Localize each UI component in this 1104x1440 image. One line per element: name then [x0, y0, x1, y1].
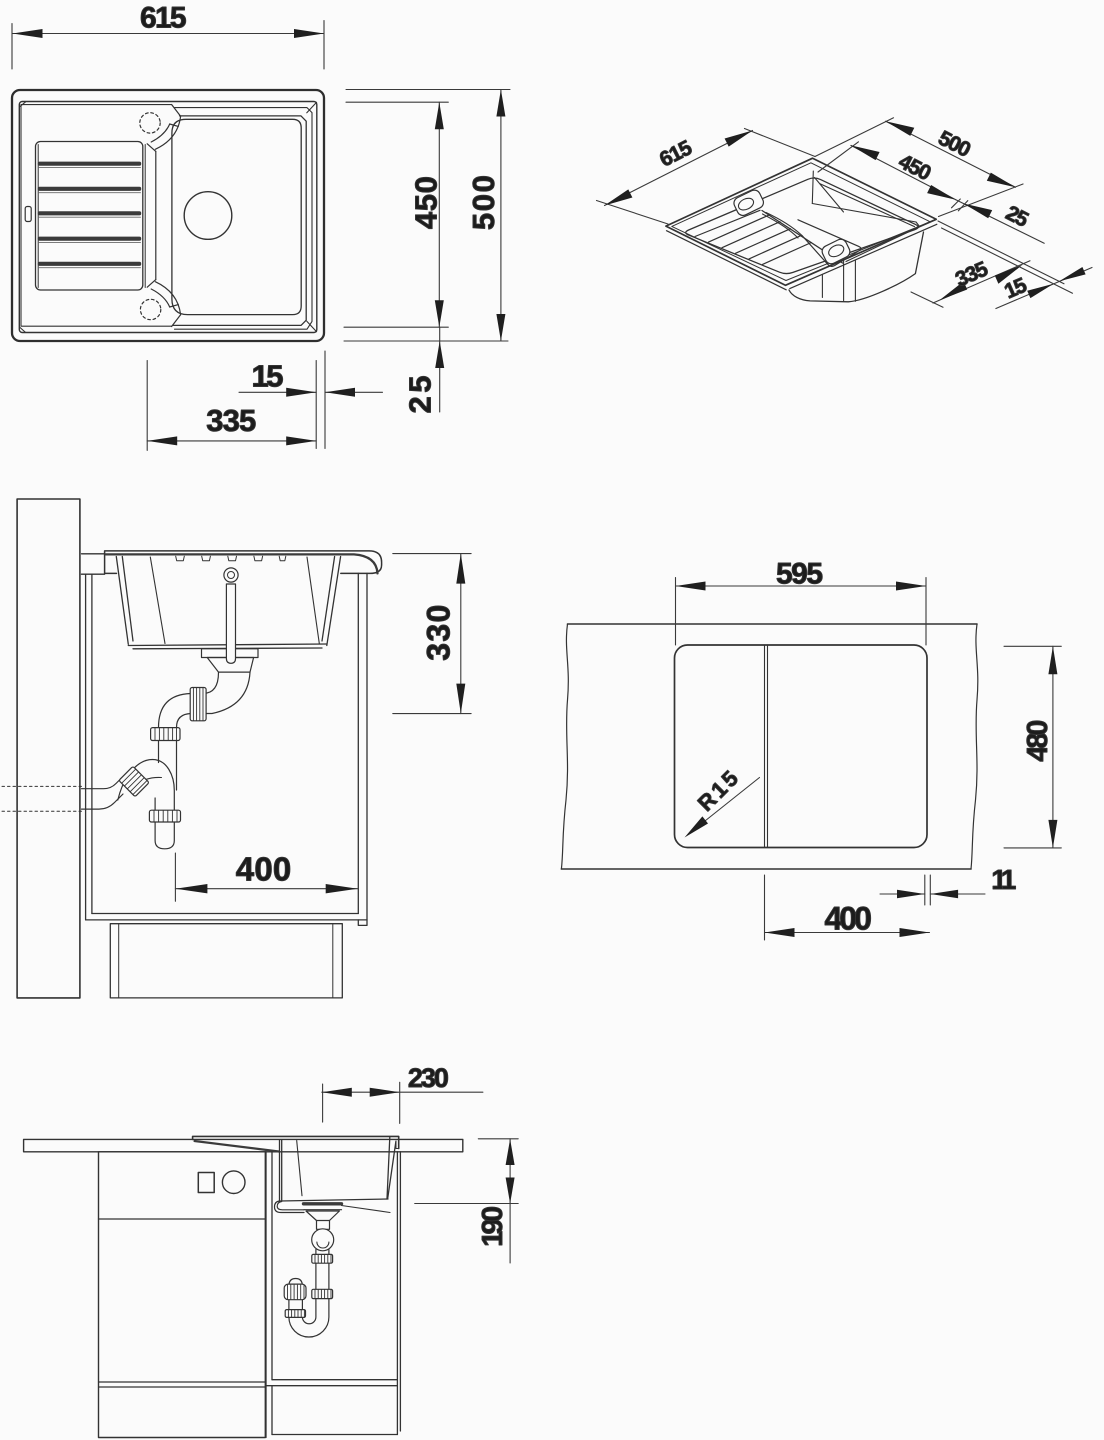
svg-text:500: 500: [466, 175, 501, 230]
svg-text:190: 190: [477, 1206, 509, 1247]
svg-text:15: 15: [252, 359, 284, 394]
svg-text:1: 1: [1001, 864, 1017, 895]
svg-text:615: 615: [140, 2, 187, 35]
svg-text:330: 330: [420, 605, 456, 661]
svg-text:400: 400: [236, 851, 292, 888]
svg-text:450: 450: [409, 176, 444, 229]
svg-text:480: 480: [1022, 720, 1054, 762]
svg-text:230: 230: [408, 1063, 449, 1093]
svg-text:400: 400: [824, 901, 872, 937]
svg-text:335: 335: [206, 403, 256, 438]
svg-text:595: 595: [776, 558, 823, 591]
